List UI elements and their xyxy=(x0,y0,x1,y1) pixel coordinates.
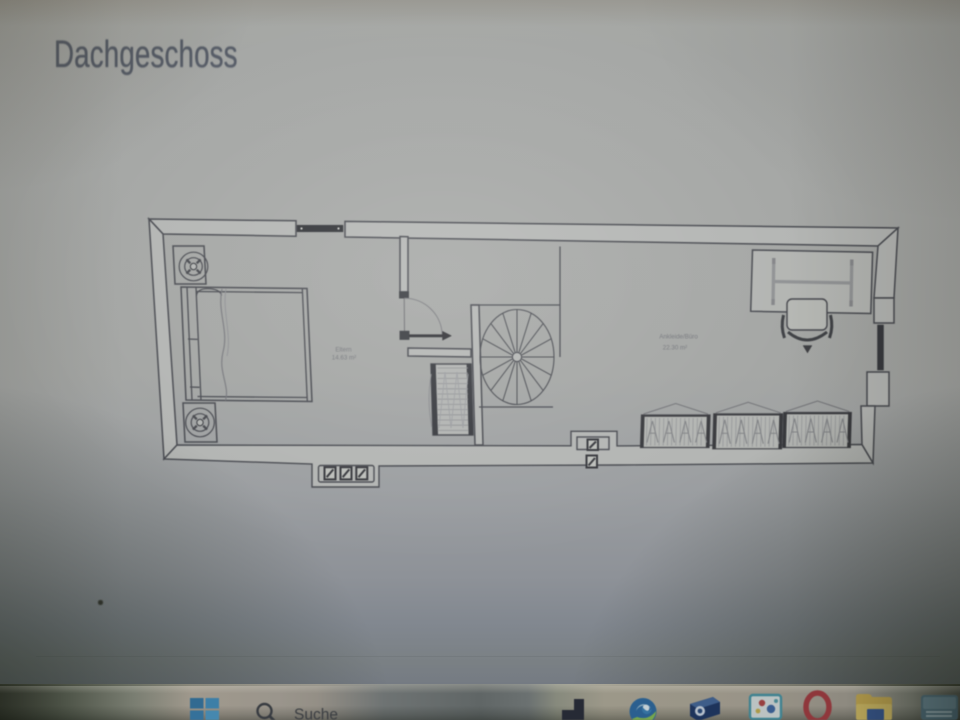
svg-text:Suche: Suche xyxy=(294,707,338,720)
